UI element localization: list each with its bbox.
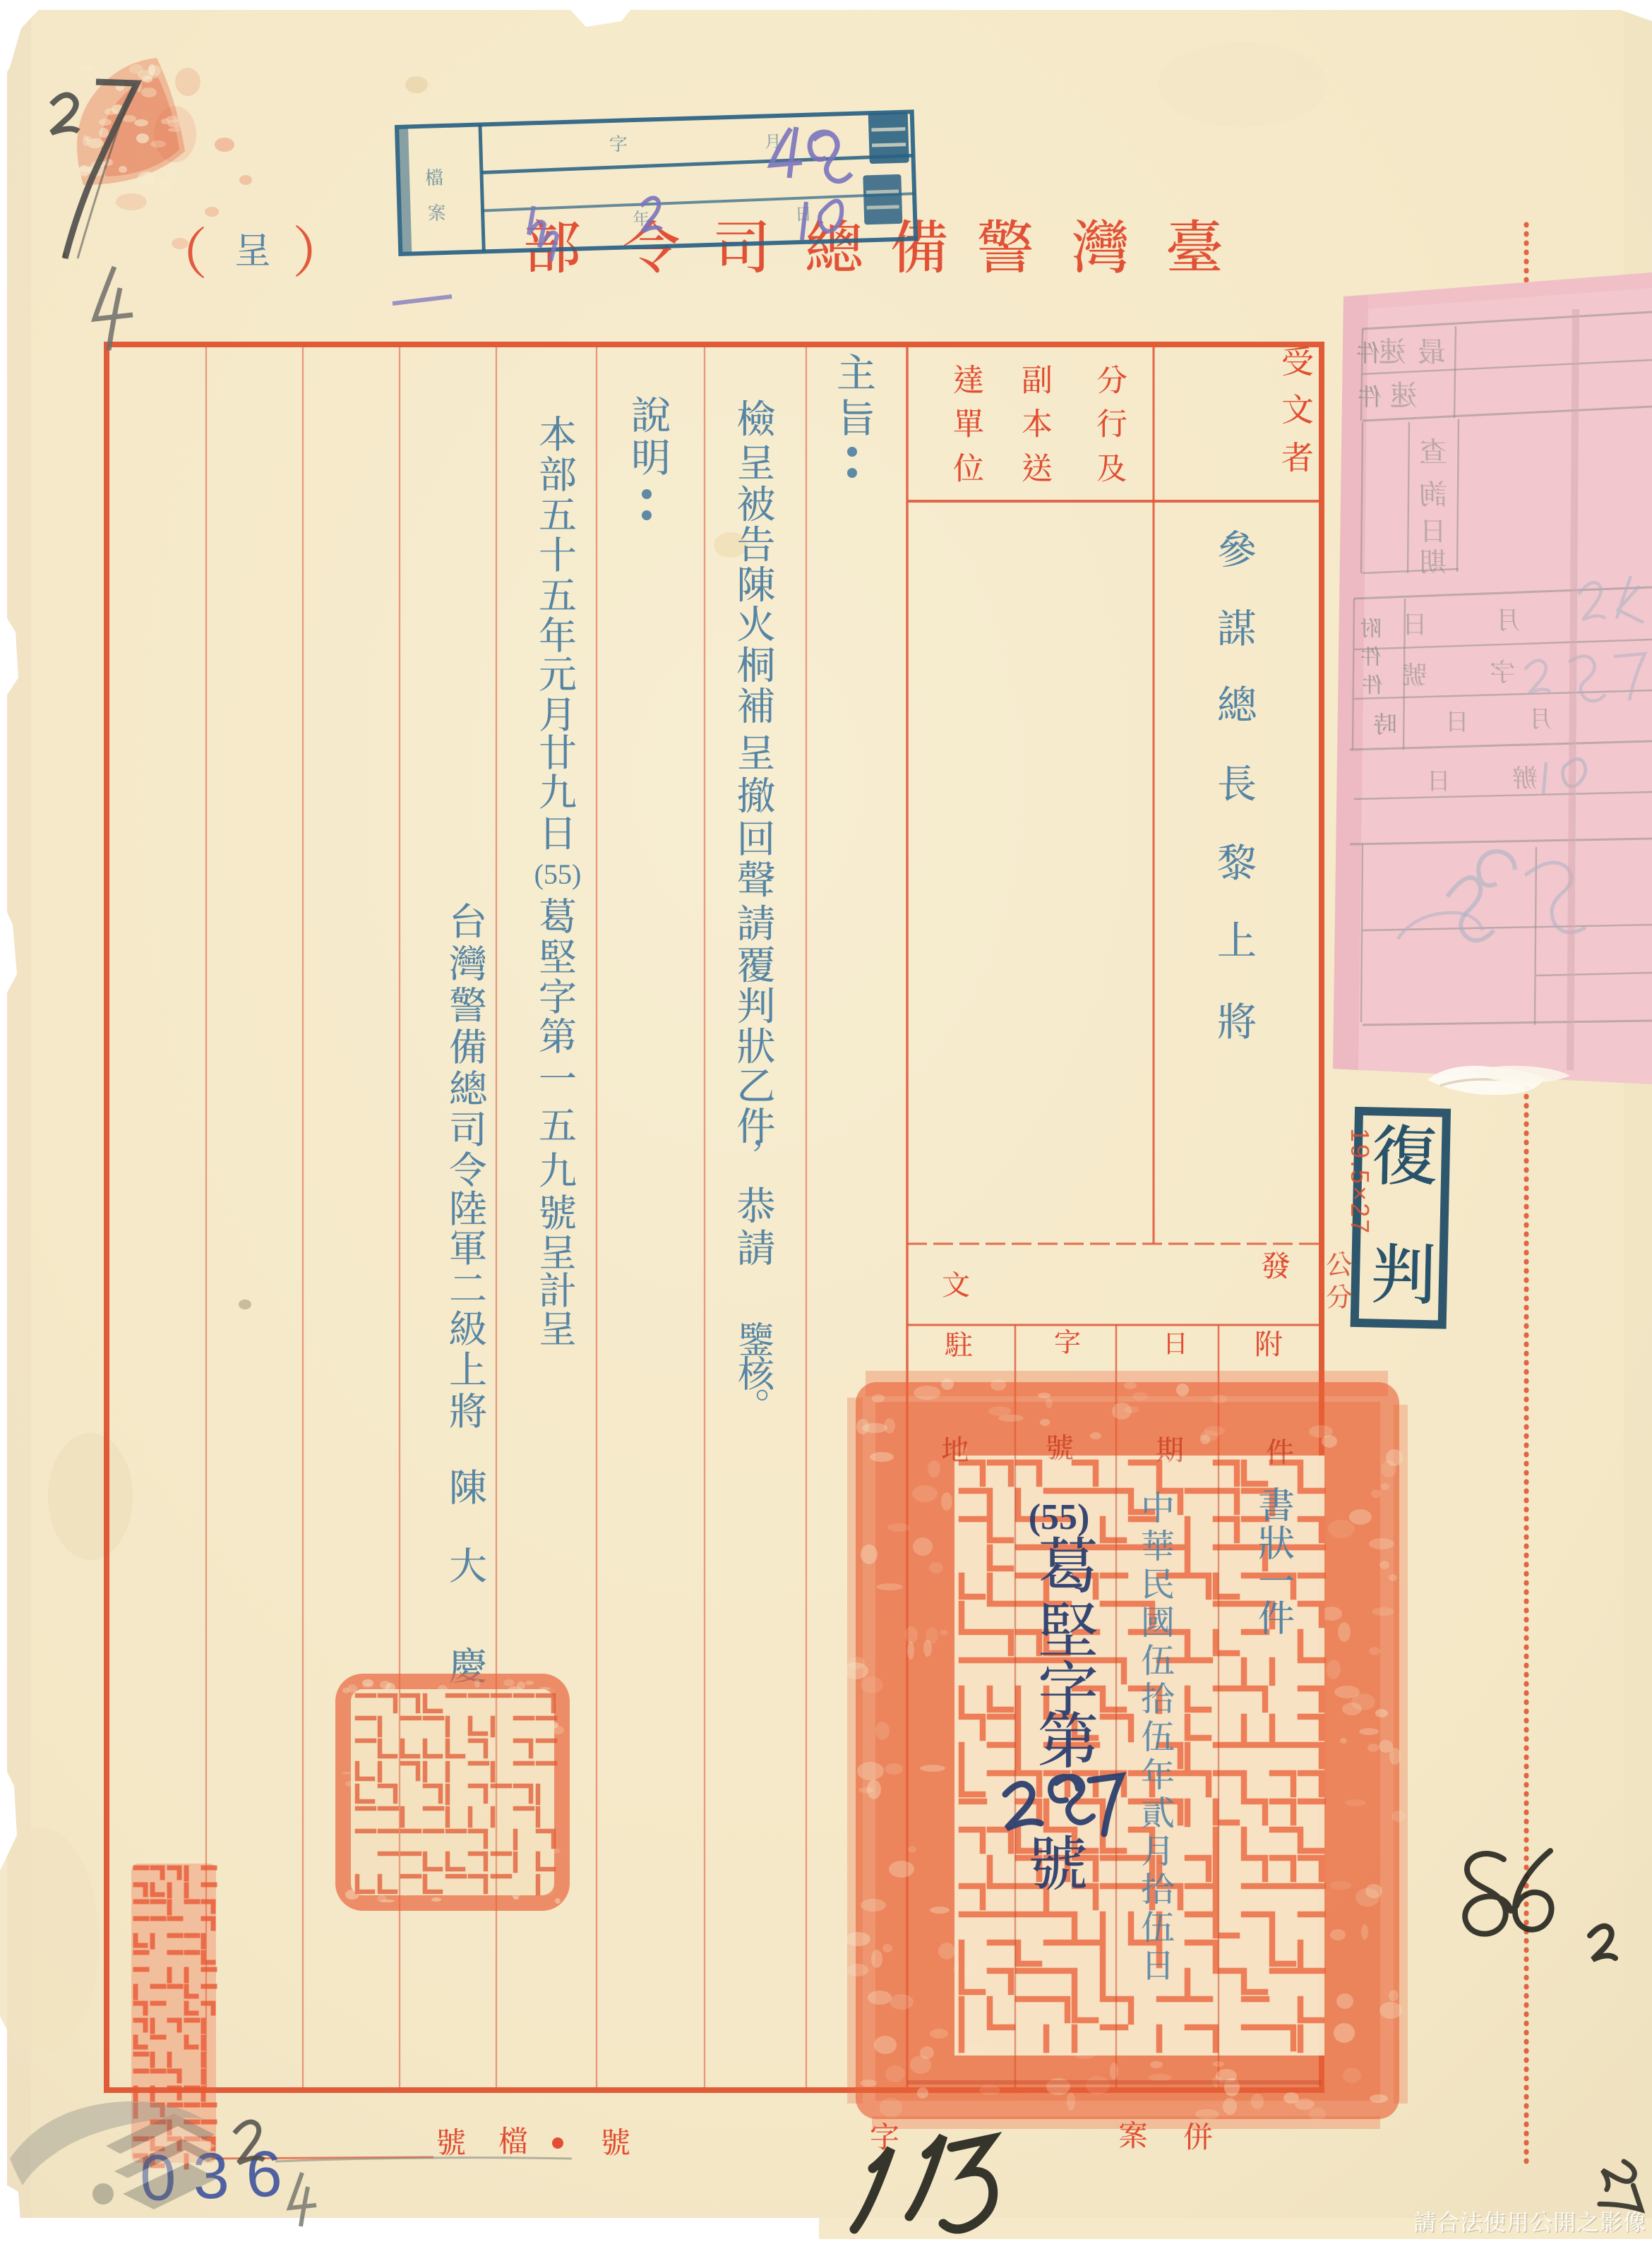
svg-text:(55): (55): [1029, 1497, 1090, 1537]
svg-text:(55): (55): [534, 858, 582, 890]
svg-text:19.5×27: 19.5×27: [1346, 1128, 1375, 1235]
